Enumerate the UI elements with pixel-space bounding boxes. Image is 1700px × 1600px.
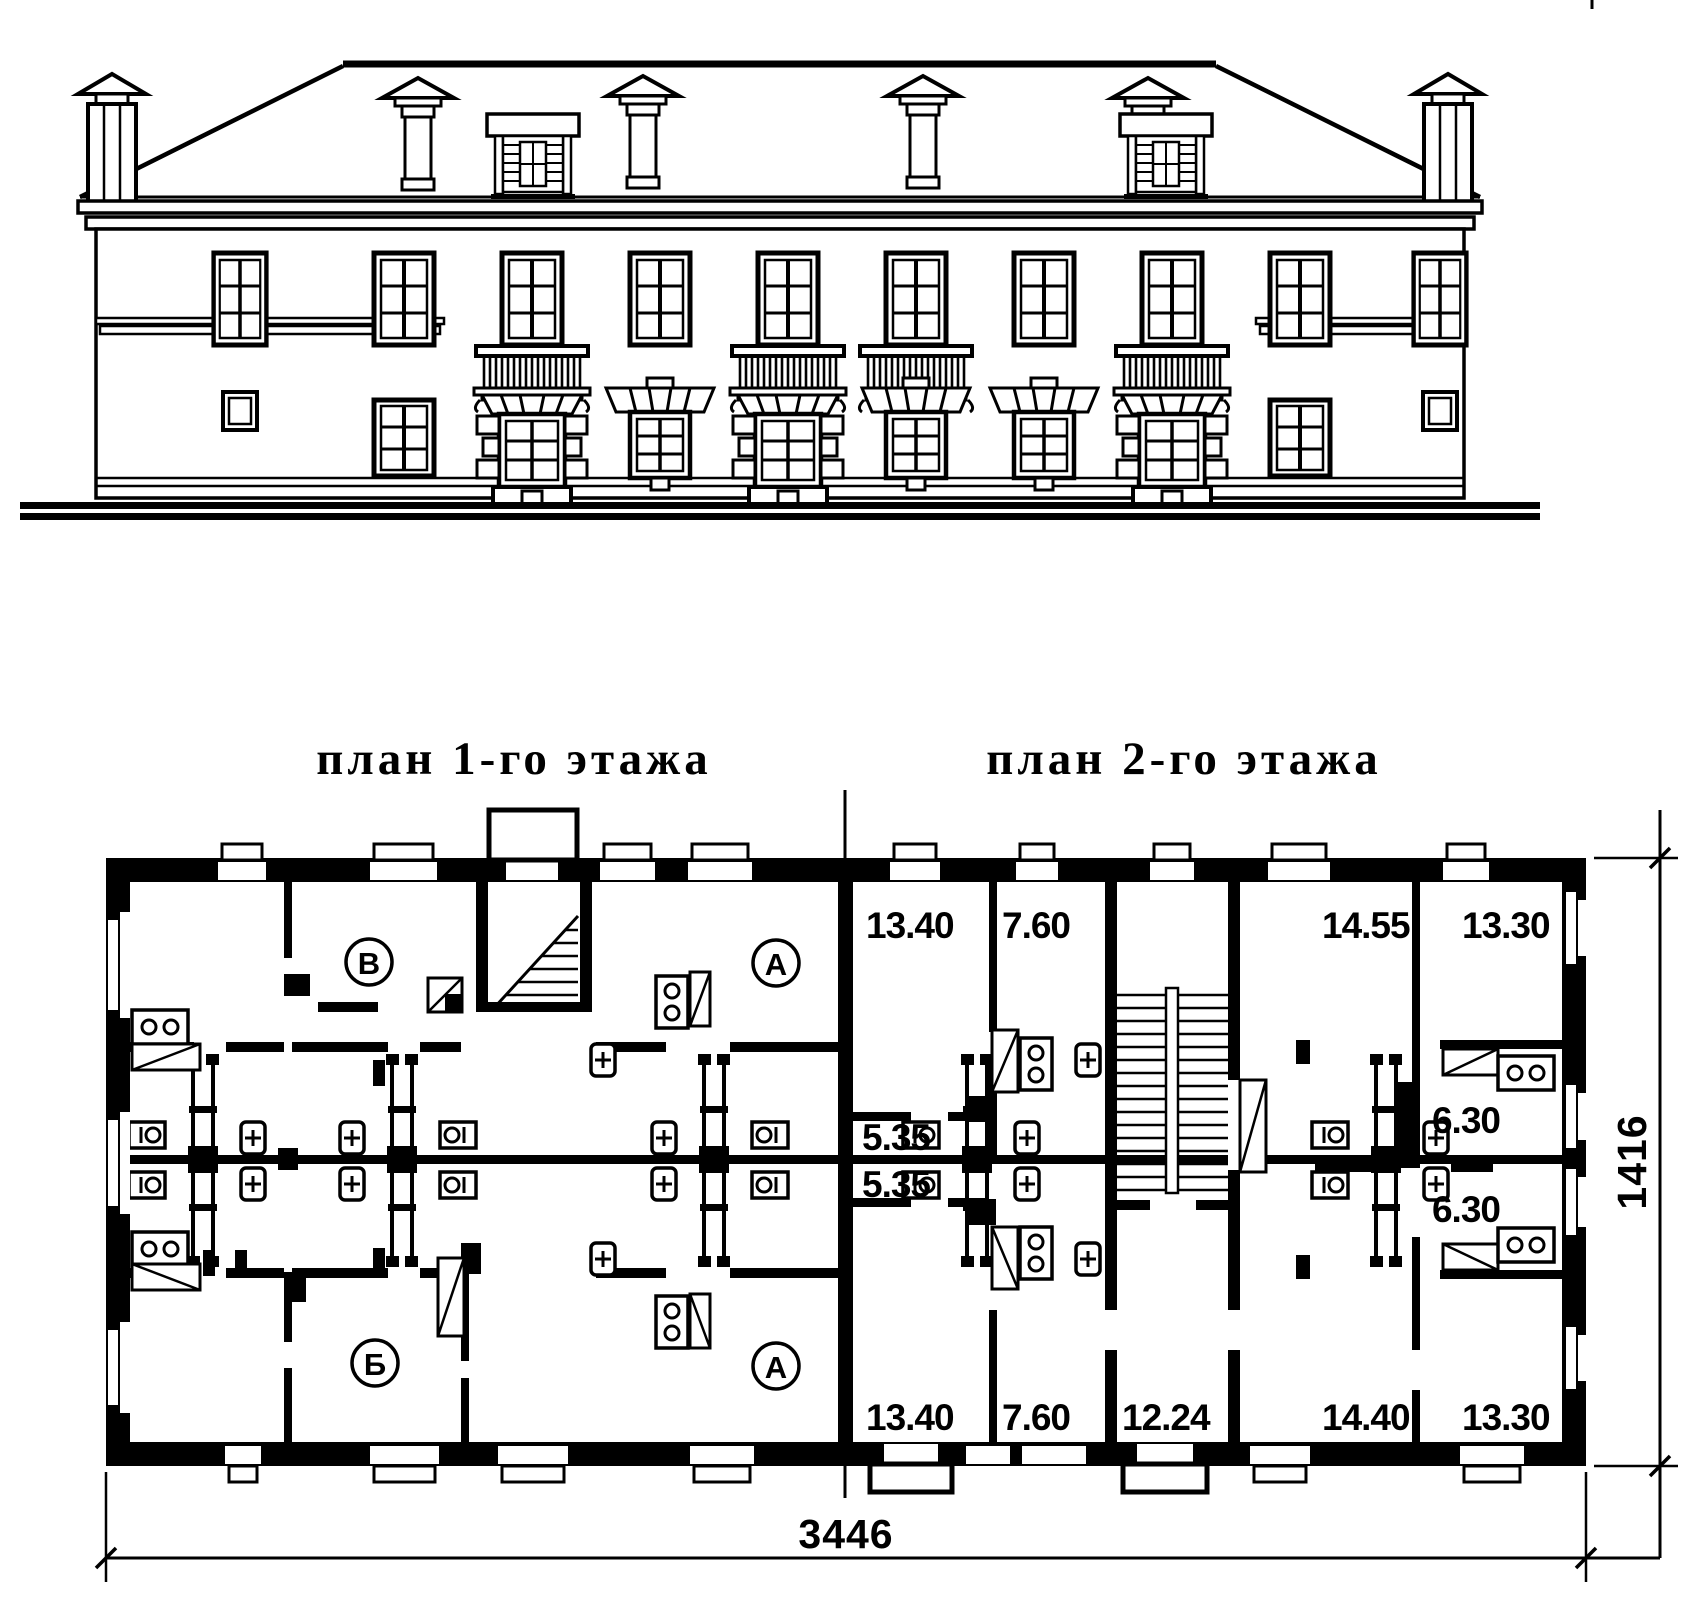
plan1-title: план 1-го этажа [316, 733, 711, 785]
area-value: 12.24 [1122, 1397, 1211, 1438]
floor-plans: В Б А А 13.40 7.60 14.55 13.30 5.35 5.35… [96, 790, 1678, 1582]
room-label-a-bottom: А [753, 1343, 799, 1389]
drawing-canvas: план 1-го этажа план 2-го этажа [0, 0, 1700, 1600]
room-letter: В [358, 946, 380, 981]
area-value: 5.35 [862, 1164, 930, 1205]
room-label-b: Б [352, 1340, 398, 1386]
dimension-height: 1416 [1594, 810, 1678, 1558]
architectural-sheet: план 1-го этажа план 2-го этажа [0, 0, 1700, 1600]
stove-icon [656, 972, 710, 1028]
stove-icon [428, 978, 463, 1012]
stove-icon [1443, 1228, 1554, 1270]
chimney-left-icon [78, 74, 146, 202]
stove-icon [656, 1294, 710, 1348]
roof [80, 64, 1480, 197]
room-letter: А [765, 947, 787, 982]
corridor-wall [130, 1155, 1562, 1164]
overall-height-value: 1416 [1609, 1114, 1655, 1209]
stove-icon [992, 1030, 1052, 1092]
vent-pipe-icon [607, 76, 679, 188]
stove-icon [132, 1232, 247, 1290]
door-leaf-icon [438, 1258, 464, 1336]
overall-width-value: 3446 [798, 1511, 893, 1557]
area-value: 14.40 [1322, 1397, 1410, 1438]
stove-icon [132, 1010, 200, 1070]
area-value: 6.30 [1432, 1100, 1500, 1141]
dormer-icon [487, 114, 579, 199]
area-value: 13.40 [866, 905, 954, 946]
stove-icon [992, 1227, 1052, 1289]
stove-icon [1443, 1049, 1554, 1090]
plan1-stair [494, 916, 578, 1008]
cornice [78, 201, 1482, 229]
plan2-title: план 2-го этажа [986, 733, 1381, 785]
vent-pipe-icon [887, 76, 959, 188]
room-letter: А [765, 1350, 787, 1385]
dormer-icon [1120, 114, 1212, 199]
ground-line [20, 502, 1540, 520]
room-label-a-top: А [753, 940, 799, 986]
area-value: 14.55 [1322, 905, 1410, 946]
area-value: 6.30 [1432, 1189, 1500, 1230]
area-value: 5.35 [862, 1117, 930, 1158]
building-elevation [20, 0, 1592, 520]
area-value: 13.30 [1462, 1397, 1550, 1438]
area-value: 13.40 [866, 1397, 954, 1438]
room-label-v: В [346, 939, 392, 985]
room-letter: Б [364, 1347, 386, 1382]
area-value: 7.60 [1002, 905, 1070, 946]
area-value: 7.60 [1002, 1397, 1070, 1438]
outer-walls [106, 790, 1586, 1498]
vent-pipe-icon [382, 78, 454, 190]
chimney-right-icon [1414, 74, 1482, 202]
area-value: 13.30 [1462, 905, 1550, 946]
